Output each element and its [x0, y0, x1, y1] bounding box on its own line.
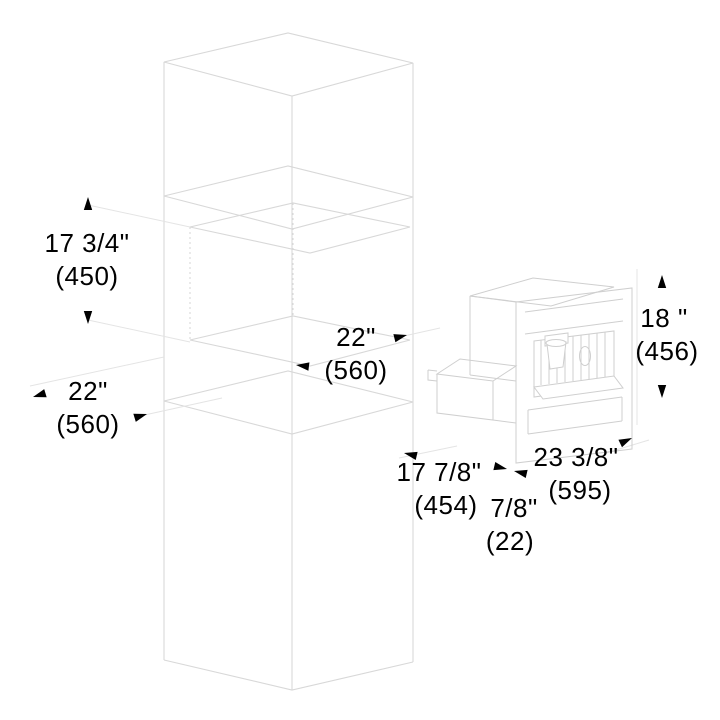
cabinet-top-face	[164, 33, 413, 96]
appliance-base-front	[437, 374, 516, 423]
ext-niche-top	[88, 205, 190, 227]
niche-height-inches: 17 3/4"	[44, 227, 129, 260]
appliance-width-mm: (595)	[541, 474, 618, 507]
appliance-body-left	[470, 296, 516, 381]
fascia-lower-bands	[528, 397, 622, 434]
fascia-outline	[516, 288, 632, 463]
spout-and-cup	[545, 333, 591, 369]
appliance-base-step	[428, 370, 437, 381]
niche-width-inches: 22"	[324, 321, 387, 354]
appliance-width-inches: 23 3/8"	[533, 441, 618, 474]
appliance-base-top	[437, 359, 516, 381]
dim-label-front-clearance: 7/8" (22)	[486, 492, 542, 558]
niche-width-mm: (560)	[324, 354, 387, 387]
cup-shelf	[534, 376, 623, 399]
front-clearance-mm: (22)	[486, 525, 534, 558]
cup-rim	[546, 340, 566, 347]
appliance-depth-inches: 17 7/8"	[396, 456, 481, 489]
dim-label-niche-height: 17 3/4" (450)	[44, 227, 129, 293]
arrow-clearance-right	[513, 467, 528, 478]
appliance-height-mm: (456)	[635, 335, 698, 368]
dim-label-appliance-width: 23 3/8" (595)	[533, 441, 618, 507]
dim-label-appliance-height: 18 " (456)	[629, 302, 698, 368]
niche-top-lines	[190, 203, 410, 253]
arrow-appliance-height-bottom	[658, 385, 666, 398]
ext-niche-bottom	[88, 320, 190, 342]
arrow-niche-width-left	[295, 361, 309, 371]
installation-diagram: 17 3/4" (450) 22" (560) 22" (560) 18 " (…	[0, 0, 720, 720]
appliance-drawing	[428, 278, 632, 463]
ext-width-mid	[404, 328, 440, 336]
appliance-height-inches: 18 "	[629, 302, 698, 335]
arrow-niche-height-bottom	[84, 311, 92, 324]
niche-depth-mm: (560)	[56, 408, 119, 441]
arrow-niche-depth-outer	[32, 389, 47, 401]
arrow-niche-height-top	[84, 197, 92, 210]
niche-depth-inches: 22"	[56, 375, 119, 408]
dim-label-appliance-depth: 17 7/8" (454)	[396, 456, 481, 522]
arrow-niche-depth-inner	[133, 410, 148, 422]
dim-label-niche-depth: 22" (560)	[56, 375, 119, 441]
dim-label-niche-width: 22" (560)	[324, 321, 387, 387]
niche-height-mm: (450)	[44, 260, 129, 293]
arrow-clearance-left	[493, 462, 508, 473]
appliance-body-top	[470, 278, 614, 306]
front-clearance-inches: 7/8"	[486, 492, 542, 525]
cabinet-bottom-edges	[164, 660, 413, 690]
arrow-appliance-height-top	[658, 275, 666, 288]
appliance-depth-mm: (454)	[410, 489, 481, 522]
